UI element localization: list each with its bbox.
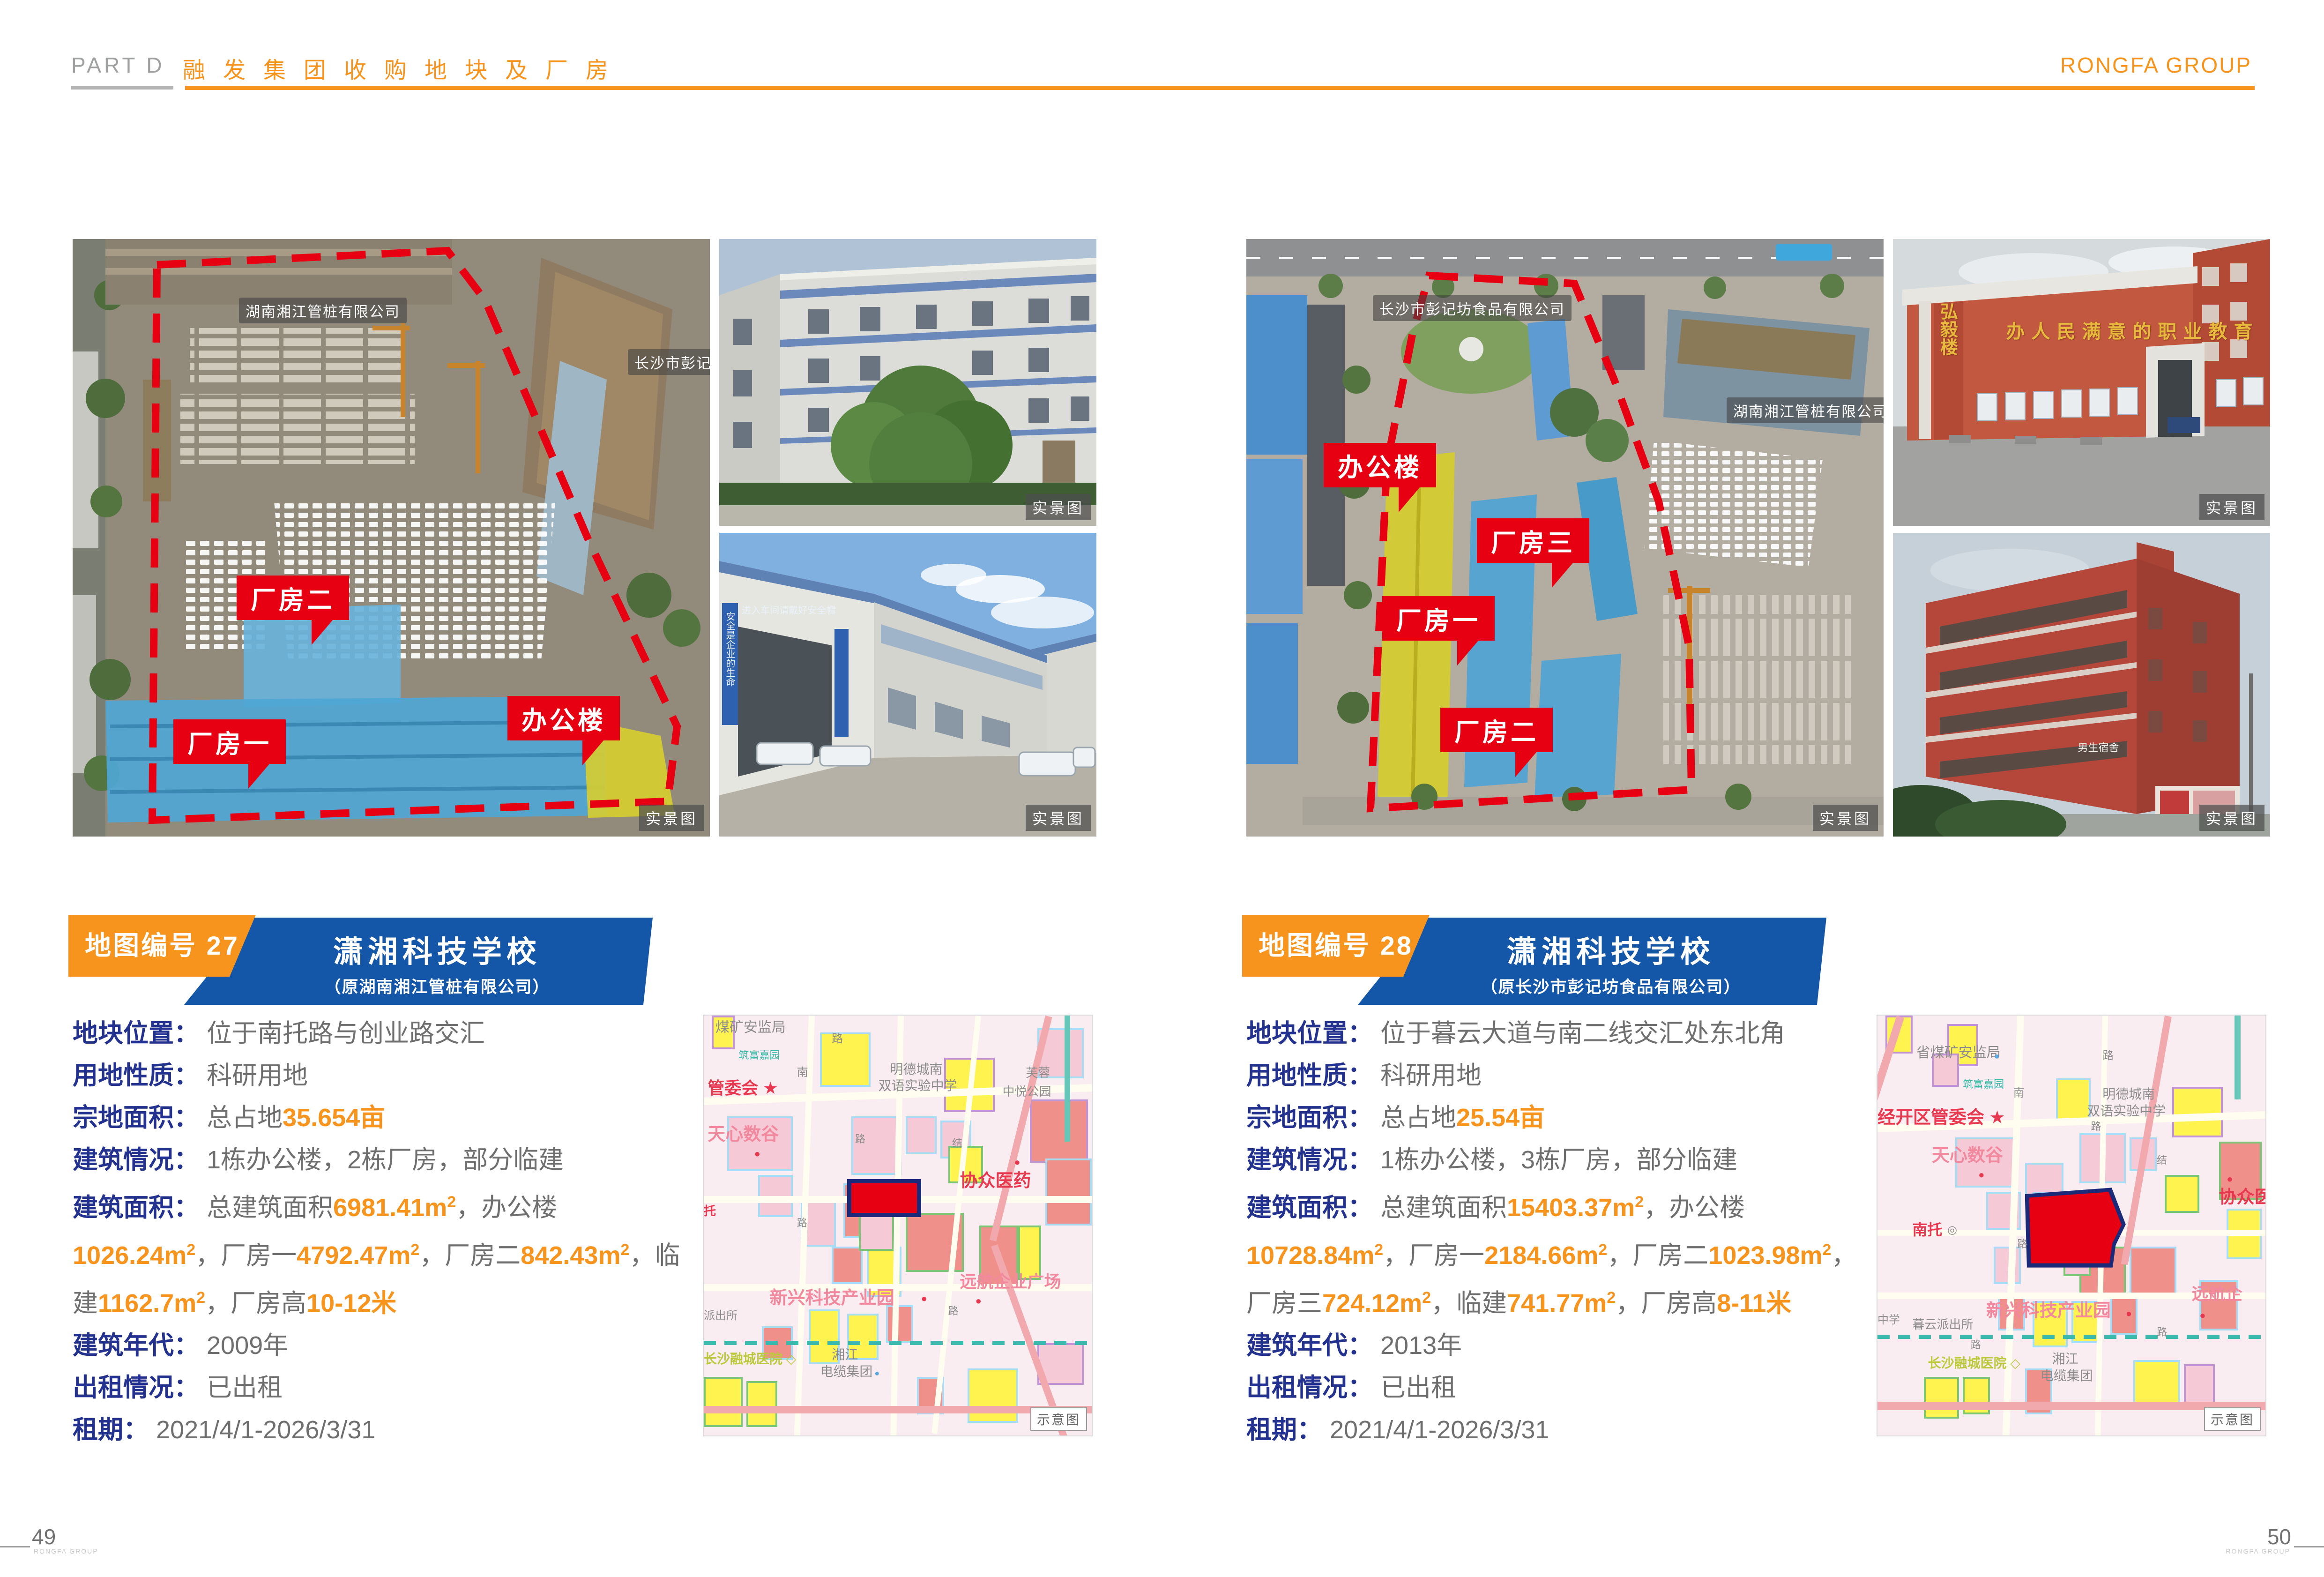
detail-value-segment: 科研用地 — [207, 1061, 308, 1090]
building-label-tag: 办公楼 — [1324, 443, 1436, 487]
map-label: 双语实验中学 — [2087, 1104, 2166, 1119]
school-banner: 潇湘科技学校 （原湖南湘江管桩有限公司） — [184, 918, 653, 1005]
map-label: 南 — [2013, 1087, 2025, 1100]
detail-value-segment: 15403.37m — [1507, 1194, 1635, 1222]
detail-value-segment: 位于暮云大道与南二线交汇处东北角 — [1380, 1019, 1785, 1047]
school-banner: 潇湘科技学校 （原长沙市彭记坊食品有限公司） — [1358, 918, 1826, 1005]
detail-value-segment: 1栋办公楼，2栋厂房，部分临建 — [207, 1146, 564, 1174]
map-label: 南托 — [1913, 1221, 1943, 1239]
map-label: 煤矿安监局 — [715, 1020, 786, 1036]
building-label-tag: 厂房一 — [173, 719, 286, 764]
map-label: 天心数谷 — [708, 1125, 779, 1145]
detail-label: 建筑年代： — [73, 1331, 199, 1360]
site-photo-redhall: 弘毅楼办人民满意的职业教育 实景图 — [1893, 239, 2270, 526]
map-label: 双语实验中学 — [879, 1078, 957, 1093]
detail-value-segment: 10-12米 — [306, 1289, 396, 1317]
map-road — [1877, 1335, 2265, 1339]
map-block — [1030, 1099, 1088, 1162]
map-label: ● — [1014, 1156, 1020, 1168]
photo-type-tag: 实景图 — [1026, 805, 1091, 831]
map-block — [2130, 1247, 2176, 1297]
detail-row: 建筑面积：总建筑面积15403.37m2，办公楼10728.84m2，厂房一21… — [1246, 1181, 1872, 1324]
photo-text: 办人民满意的职业教育 — [2006, 316, 2259, 344]
map-label: 经开区管委会 ★ — [1877, 1108, 2005, 1129]
detail-value-segment: 1023.98m — [1708, 1241, 1822, 1270]
detail-value-segment: 总建筑面积 — [207, 1194, 333, 1222]
map-block — [886, 1305, 913, 1343]
map-label: 明德城南 — [890, 1062, 942, 1077]
detail-value-segment: 2184.66m — [1484, 1241, 1598, 1270]
detail-value-segment: 2 — [410, 1241, 419, 1259]
location-map: 省煤矿安监局●筑富嘉园经开区管委会 ★南路明德城南双语实验中学路天心数谷●协众医… — [1877, 1015, 2266, 1436]
photo-type-tag: 实景图 — [1026, 494, 1091, 520]
map-label: 协众医 — [2219, 1188, 2266, 1208]
map-label: 路 — [1971, 1339, 1981, 1351]
detail-value-segment: 科研用地 — [1380, 1061, 1482, 1090]
property-details: 地块位置：位于南托路与创业路交汇用地性质：科研用地宗地面积：总占地35.654亩… — [73, 1012, 698, 1451]
detail-value-segment: ，办公楼 — [456, 1194, 557, 1222]
map-label: 路 — [2017, 1238, 2027, 1250]
map-number-badge: 地图编号 28 — [1242, 915, 1430, 977]
map-block — [2172, 1087, 2223, 1137]
part-label: PART D — [71, 52, 165, 78]
detail-value-segment: ，厂房二 — [419, 1241, 521, 1270]
detail-value-segment: 总占地 — [1380, 1104, 1456, 1132]
detail-value-segment: ，厂房一 — [1383, 1241, 1484, 1270]
photo-text-overlay: 弘毅楼办人民满意的职业教育 — [1893, 239, 2270, 526]
detail-value-segment: 2 — [1635, 1193, 1644, 1211]
footer-imprint-right: RONGFA GROUP — [2226, 1547, 2290, 1555]
detail-label: 出租情况： — [1246, 1374, 1373, 1402]
detail-label: 租期： — [1246, 1416, 1322, 1444]
map-label: 新兴科技产业园 — [1986, 1301, 2111, 1322]
former-company: （原湖南湘江管桩有限公司） — [184, 974, 653, 998]
footer-rule-left — [0, 1546, 30, 1547]
detail-value-segment: 2 — [1823, 1241, 1832, 1259]
map-label: 新兴科技产业园 — [770, 1288, 894, 1309]
photo-type-tag: 实景图 — [1813, 805, 1878, 831]
photo-text-overlay: 进入车间请戴好安全帽安全是企业的生命 — [719, 533, 1096, 837]
school-name: 潇湘科技学校 — [184, 928, 653, 971]
parcel-panel-27: 湖南湘江管桩有限公司长沙市彭记坊食品厂房二厂房一办公楼 实景图 — [73, 239, 1099, 1448]
title-banner: 潇湘科技学校 （原湖南湘江管桩有限公司） 地图编号 27 — [73, 915, 766, 1009]
map-block — [1924, 1377, 1959, 1419]
detail-value-segment: 2 — [186, 1241, 195, 1259]
detail-value-segment: 741.77m — [1507, 1289, 1607, 1317]
map-label: 省煤矿安监局 — [1916, 1045, 2001, 1061]
detail-label: 地块位置： — [73, 1019, 199, 1047]
detail-label: 宗地面积： — [73, 1104, 199, 1132]
photo-text-overlay — [719, 239, 1096, 526]
parcel-highlight — [2025, 1188, 2126, 1267]
map-label: 芙蓉 — [1026, 1066, 1050, 1080]
detail-label: 地块位置： — [1246, 1019, 1373, 1047]
detail-row: 建筑年代：2013年 — [1246, 1324, 1872, 1367]
map-road — [1877, 1016, 1904, 1417]
detail-value-segment: 2 — [1374, 1241, 1383, 1259]
map-label: 明德城南 — [2102, 1087, 2155, 1102]
map-label: 协众医药 — [960, 1171, 1031, 1192]
map-label: 湘江 — [832, 1347, 858, 1362]
detail-value-segment: 位于南托路与创业路交汇 — [207, 1019, 485, 1047]
building-label-tag: 办公楼 — [507, 696, 620, 740]
school-name: 潇湘科技学校 — [1358, 928, 1826, 971]
site-photo-dormitory: 男生宿舍 实景图 — [1893, 533, 2270, 837]
detail-label: 用地性质： — [73, 1061, 199, 1090]
detail-value-segment: 2 — [620, 1241, 629, 1259]
detail-label: 租期： — [73, 1416, 149, 1444]
detail-row: 租期：2021/4/1-2026/3/31 — [1246, 1409, 1872, 1451]
detail-value-segment: 2 — [1422, 1289, 1431, 1307]
aerial-overlay: 湖南湘江管桩有限公司长沙市彭记坊食品厂房二厂房一办公楼 — [73, 239, 710, 837]
building-label-tag: 厂房三 — [1477, 518, 1589, 563]
photo-text: 弘毅楼 — [1935, 302, 1960, 356]
detail-value-segment: 25.54亩 — [1456, 1104, 1545, 1132]
map-label: 路 — [832, 1032, 843, 1046]
map-block — [1994, 1247, 2021, 1285]
map-label: 长沙融城医院 ◇ — [704, 1352, 796, 1367]
detail-value-segment: 2021/4/1-2026/3/31 — [156, 1416, 375, 1444]
detail-value-segment: ，厂房高 — [1616, 1289, 1717, 1317]
map-label: ● — [2227, 1173, 2233, 1185]
map-label: 结 — [2157, 1154, 2167, 1166]
map-label: 路 — [948, 1305, 959, 1317]
company-name-tag: 长沙市彭记坊食品 — [628, 349, 710, 375]
detail-value-segment: ，厂房高 — [205, 1289, 306, 1317]
header-rule-orange — [185, 86, 2255, 90]
photo-type-tag: 实景图 — [639, 805, 704, 831]
parcel-panel-28: 长沙市彭记坊食品有限公司湖南湘江管桩有限公司办公楼厂房三厂房一厂房二 实景图 — [1246, 239, 2272, 1448]
map-block — [820, 1032, 871, 1087]
detail-row: 建筑情况：1栋办公楼，2栋厂房，部分临建 — [73, 1139, 698, 1181]
map-label: ● — [1978, 1169, 1984, 1181]
map-block — [851, 1116, 902, 1175]
photo-type-tag: 实景图 — [2199, 805, 2264, 831]
detail-label: 建筑面积： — [1246, 1194, 1373, 1222]
map-label: 天心数谷 — [1932, 1146, 2003, 1166]
aerial-photo: 湖南湘江管桩有限公司长沙市彭记坊食品厂房二厂房一办公楼 实景图 — [73, 239, 710, 837]
map-label: 托 — [704, 1204, 716, 1218]
detail-value-segment: 2013年 — [1380, 1331, 1462, 1360]
detail-label: 用地性质： — [1246, 1061, 1373, 1090]
map-block — [2165, 1175, 2200, 1213]
detail-row: 用地性质：科研用地 — [1246, 1054, 1872, 1097]
map-label: ● — [2126, 1308, 2132, 1319]
detail-row: 出租情况：已出租 — [73, 1367, 698, 1409]
map-label: 筑富嘉园 — [1963, 1078, 2004, 1090]
map-label: ● — [874, 1368, 879, 1378]
map-label: 路 — [2157, 1326, 2167, 1338]
map-label: 长沙融城医院 ◇ — [1928, 1356, 2020, 1371]
header-rule-gray — [71, 86, 173, 90]
map-label: 电缆集团 — [2041, 1368, 2093, 1383]
title-banner: 潇湘科技学校 （原长沙市彭记坊食品有限公司） 地图编号 28 — [1246, 915, 1940, 1009]
map-label: 路 — [2102, 1049, 2114, 1062]
detail-value-segment: 1栋办公楼，3栋厂房，部分临建 — [1380, 1146, 1737, 1174]
detail-value-segment: ，办公楼 — [1644, 1194, 1745, 1222]
parcel-highlight — [847, 1179, 921, 1217]
detail-value-segment: 6981.41m — [333, 1194, 447, 1222]
footer-rule-right — [2294, 1546, 2324, 1547]
map-label: 远航企 — [2192, 1284, 2242, 1303]
map-label: 中学 — [1877, 1314, 1900, 1327]
map-label: 筑富嘉园 — [739, 1049, 780, 1061]
detail-value-segment: 4792.47m — [297, 1241, 410, 1270]
map-block — [704, 1377, 743, 1428]
detail-row: 出租情况：已出租 — [1246, 1367, 1872, 1409]
detail-row: 租期：2021/4/1-2026/3/31 — [73, 1409, 698, 1451]
photo-type-tag: 实景图 — [2199, 494, 2264, 520]
company-name-tag: 湖南湘江管桩有限公司 — [239, 298, 407, 323]
photo-text: 进入车间请戴好安全帽 — [742, 603, 835, 616]
map-label: 南 — [797, 1066, 808, 1079]
brand-name: RONGFA GROUP — [2060, 52, 2252, 78]
brochure-page: { "header": { "part": "PART D", "title":… — [0, 0, 2324, 1577]
footer-imprint-left: RONGFA GROUP — [34, 1547, 98, 1555]
page-number-right: 50 — [2267, 1524, 2291, 1549]
map-label: 路 — [855, 1133, 865, 1145]
map-label: 管委会 ★ — [708, 1078, 778, 1098]
building-label-tag: 厂房二 — [1440, 708, 1553, 752]
site-photo-building: 实景图 — [719, 239, 1096, 526]
map-road — [704, 1341, 1092, 1345]
company-name-tag: 湖南湘江管桩有限公司 — [1727, 397, 1884, 423]
map-label: 电缆集团 — [820, 1364, 872, 1379]
detail-row: 建筑年代：2009年 — [73, 1324, 698, 1367]
map-block — [2110, 1297, 2138, 1335]
detail-row: 地块位置：位于暮云大道与南二线交汇处东北角 — [1246, 1012, 1872, 1054]
map-label: ● — [976, 1295, 982, 1307]
detail-value-segment: 35.654亩 — [283, 1104, 385, 1132]
parcel-highlight-fill — [851, 1183, 916, 1213]
map-label: ● — [921, 1293, 927, 1304]
map-label: 派出所 — [704, 1309, 737, 1323]
map-road — [2235, 1016, 2241, 1099]
building-label-tag: 厂房一 — [1382, 596, 1495, 641]
detail-label: 出租情况： — [73, 1374, 199, 1402]
page-title: 融发集团收购地块及厂房 — [183, 52, 626, 84]
map-label: 中悦公园 — [1003, 1085, 1051, 1099]
map-number-badge: 地图编号 27 — [68, 915, 256, 977]
map-type-tag: 示意图 — [1030, 1407, 1087, 1431]
photo-text-overlay: 男生宿舍 — [1893, 533, 2270, 837]
map-label: 路 — [797, 1217, 807, 1229]
map-label: ● — [2199, 1309, 2205, 1321]
detail-label: 建筑情况： — [73, 1146, 199, 1174]
photo-text: 男生宿舍 — [2078, 740, 2119, 755]
photo-text: 安全是企业的生命 — [723, 612, 737, 687]
detail-label: 建筑年代： — [1246, 1331, 1373, 1360]
detail-value-segment: 8-11米 — [1717, 1289, 1791, 1317]
detail-row: 建筑情况：1栋办公楼，3栋厂房，部分临建 — [1246, 1139, 1872, 1181]
property-details: 地块位置：位于暮云大道与南二线交汇处东北角用地性质：科研用地宗地面积：总占地25… — [1246, 1012, 1872, 1451]
detail-value-segment: 已出租 — [1380, 1374, 1456, 1402]
detail-value-segment: 2 — [1598, 1241, 1607, 1259]
building-label-tag: 厂房二 — [237, 575, 349, 620]
detail-value-segment: 2009年 — [207, 1331, 288, 1360]
company-name-tag: 长沙市彭记坊食品有限公司 — [1373, 295, 1572, 321]
map-block — [968, 1368, 1018, 1423]
map-block — [746, 1381, 777, 1428]
former-company: （原长沙市彭记坊食品有限公司） — [1358, 974, 1826, 998]
detail-value-segment: 总占地 — [207, 1104, 283, 1132]
detail-value-segment: 2 — [447, 1193, 456, 1211]
parcel-highlight-fill — [2029, 1192, 2122, 1263]
map-block — [832, 1247, 863, 1285]
detail-row: 用地性质：科研用地 — [73, 1054, 698, 1097]
detail-label: 建筑面积： — [73, 1194, 199, 1222]
detail-value-segment: ，厂房二 — [1607, 1241, 1708, 1270]
map-label: ● — [1994, 1051, 1999, 1062]
detail-value-segment: 724.12m — [1322, 1289, 1422, 1317]
map-label: ● — [754, 1148, 760, 1159]
detail-row: 宗地面积：总占地25.54亩 — [1246, 1097, 1872, 1139]
detail-value-segment: 总建筑面积 — [1380, 1194, 1507, 1222]
map-block — [906, 1116, 937, 1154]
map-label: 湘江 — [2052, 1352, 2078, 1367]
map-road — [2121, 1016, 2171, 1265]
detail-value-segment: 2021/4/1-2026/3/31 — [1330, 1416, 1549, 1444]
detail-value-segment: ，厂房一 — [195, 1241, 297, 1270]
detail-value-segment: 2 — [196, 1289, 205, 1307]
detail-label: 宗地面积： — [1246, 1104, 1373, 1132]
aerial-overlay: 长沙市彭记坊食品有限公司湖南湘江管桩有限公司办公楼厂房三厂房一厂房二 — [1246, 239, 1884, 837]
map-label: 暮云派出所 — [1913, 1318, 1974, 1332]
detail-value-segment: ，临建 — [1431, 1289, 1507, 1317]
location-map: 煤矿安监局筑富嘉园管委会 ★南路明德城南双语实验中学芙蓉中悦公园天心数谷●路结协… — [703, 1015, 1093, 1436]
detail-value-segment: 842.43m — [521, 1241, 620, 1270]
detail-value-segment: 1162.7m — [98, 1289, 196, 1317]
detail-row: 宗地面积：总占地35.654亩 — [73, 1097, 698, 1139]
map-block — [1045, 1158, 1092, 1226]
page-number-left: 49 — [32, 1524, 56, 1549]
detail-row: 地块位置：位于南托路与创业路交汇 — [73, 1012, 698, 1054]
detail-value-segment: 10728.84m — [1246, 1241, 1374, 1270]
map-label: 路 — [2091, 1121, 2101, 1132]
detail-label: 建筑情况： — [1246, 1146, 1373, 1174]
map-block — [2184, 1364, 2215, 1406]
map-label: 结 — [952, 1137, 962, 1149]
map-type-tag: 示意图 — [2204, 1407, 2261, 1431]
site-photo-factory: 进入车间请戴好安全帽安全是企业的生命 实景图 — [719, 533, 1096, 837]
detail-value-segment: 2 — [1607, 1289, 1616, 1307]
aerial-photo: 长沙市彭记坊食品有限公司湖南湘江管桩有限公司办公楼厂房三厂房一厂房二 实景图 — [1246, 239, 1884, 837]
detail-row: 建筑面积：总建筑面积6981.41m2，办公楼1026.24m2，厂房一4792… — [73, 1181, 698, 1324]
map-label: 远航企业广场 — [960, 1272, 1061, 1291]
map-road — [1065, 1016, 1070, 1142]
detail-value-segment: 已出租 — [207, 1374, 283, 1402]
detail-value-segment: 1026.24m — [73, 1241, 186, 1270]
map-label: ◎ — [1947, 1224, 1957, 1237]
